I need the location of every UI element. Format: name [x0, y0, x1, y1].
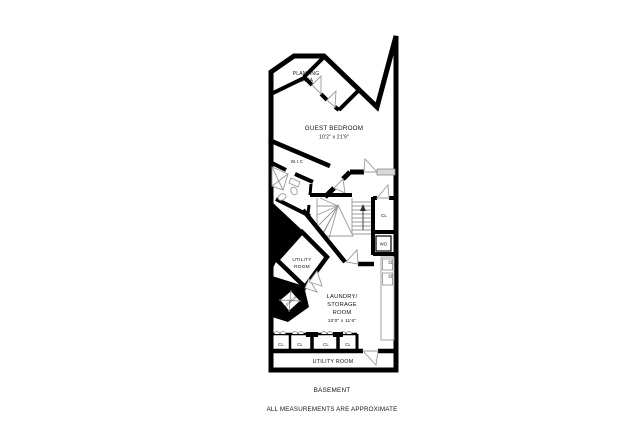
utility-room-bottom-label: UTILITY ROOM [313, 359, 354, 365]
guest-bedroom-label: GUEST BEDROOM [305, 125, 363, 132]
closet-label: CL [381, 213, 387, 218]
door-swing [334, 179, 345, 193]
door-swing [363, 351, 378, 365]
door-swing [312, 76, 321, 94]
toilet-tank [289, 178, 300, 187]
window [377, 169, 395, 175]
laundry-dims: 10'0" x 11'6" [328, 318, 357, 324]
floor-title: BASEMENT [314, 387, 351, 394]
floor-plan: PLANTING AREA GUEST BEDROOM 10'2" x 21'9… [0, 0, 640, 427]
door-swing [346, 250, 358, 264]
laundry-label: LAUNDRY/ [327, 294, 358, 300]
closet-label: CL [297, 342, 303, 347]
utility-room-mid-label: ROOM [294, 264, 310, 270]
stair-landing [322, 205, 353, 236]
floorplan-page: PLANTING AREA GUEST BEDROOM 10'2" x 21'9… [0, 0, 640, 427]
closet-label: CL [278, 342, 284, 347]
washer-dryer-label: WD [380, 242, 387, 247]
laundry-label: STORAGE [327, 302, 357, 308]
closet-label: CL [345, 342, 351, 347]
toilet [290, 186, 299, 196]
door-swing [327, 91, 336, 107]
door-swing [377, 185, 389, 198]
closet-label: CL [323, 342, 329, 347]
guest-bedroom-dims: 10'2" x 21'9" [319, 135, 349, 141]
wall [308, 184, 311, 214]
utility-room-mid-label: UTILITY [292, 257, 312, 263]
disclaimer-text: ALL MEASUREMENTS ARE APPROXIMATE [267, 406, 398, 413]
door-swing [364, 159, 377, 172]
laundry-label: ROOM [333, 310, 352, 316]
planting-area-label: AREA [299, 78, 314, 84]
planting-area-label: PLANTING [293, 71, 320, 77]
wic-label: W.I.C [291, 159, 304, 165]
wall [339, 90, 359, 110]
stair-direction-arrow [360, 204, 366, 211]
